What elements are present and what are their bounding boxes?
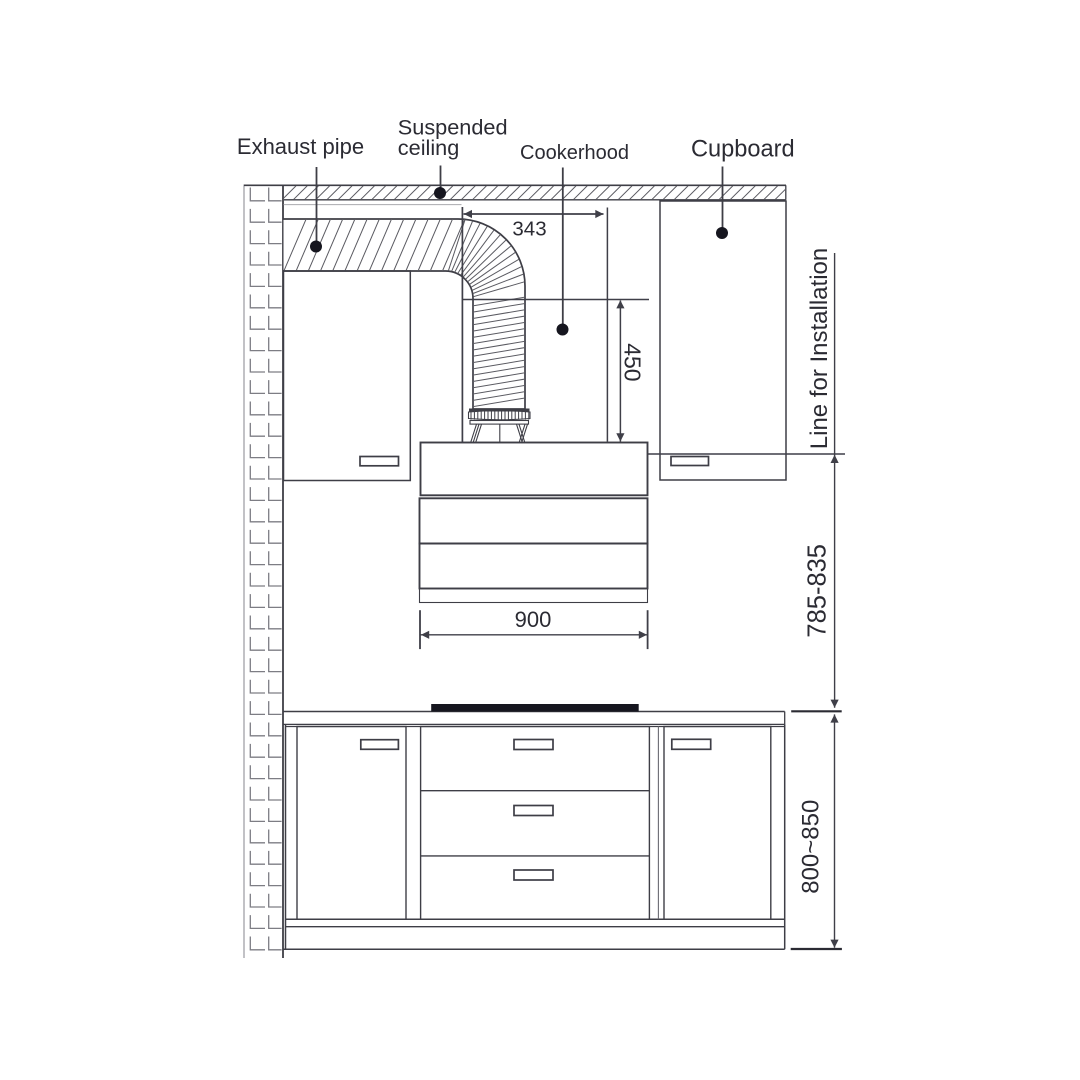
- svg-text:Exhaust pipe: Exhaust pipe: [237, 134, 364, 159]
- svg-text:343: 343: [512, 218, 546, 241]
- svg-text:900: 900: [515, 607, 552, 632]
- svg-text:Line for Installation: Line for Installation: [806, 248, 833, 449]
- svg-text:785-835: 785-835: [804, 544, 832, 638]
- svg-text:Cookerhood: Cookerhood: [520, 142, 629, 164]
- svg-text:ceiling: ceiling: [398, 135, 459, 160]
- svg-text:450: 450: [620, 343, 646, 381]
- svg-text:Cupboard: Cupboard: [691, 137, 795, 163]
- svg-text:800~850: 800~850: [798, 800, 825, 894]
